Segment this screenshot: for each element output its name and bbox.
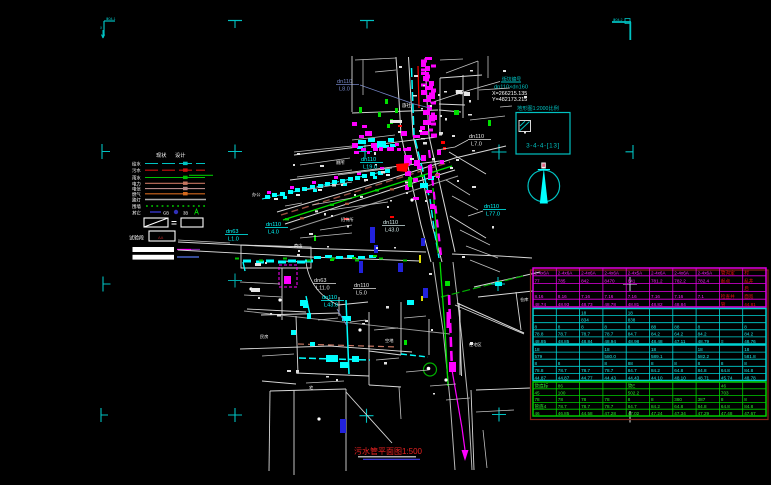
svg-text:44.58: 44.58 <box>581 411 593 416</box>
svg-text:8: 8 <box>558 325 561 330</box>
svg-text:18: 18 <box>628 310 634 315</box>
svg-text:2-4x6A: 2-4x6A <box>698 271 713 276</box>
svg-text:64.2: 64.2 <box>674 332 683 337</box>
svg-text:84.2: 84.2 <box>651 332 660 337</box>
svg-text:48.85: 48.85 <box>535 339 547 344</box>
svg-text:47.24: 47.24 <box>651 411 663 416</box>
svg-text:78.7: 78.7 <box>604 368 613 373</box>
svg-text:X=266215.135: X=266215.135 <box>492 91 527 97</box>
svg-text:8: 8 <box>581 325 584 330</box>
svg-text:84.2: 84.2 <box>698 332 707 337</box>
svg-text:46: 46 <box>721 384 727 389</box>
svg-text:dn110: dn110 <box>322 295 337 301</box>
svg-text:7.16: 7.16 <box>604 294 613 299</box>
svg-text:仓库: 仓库 <box>520 296 528 303</box>
svg-text:703: 703 <box>721 390 729 395</box>
svg-text:dn63: dn63 <box>226 229 238 235</box>
svg-text:84.8: 84.8 <box>744 368 753 373</box>
svg-text:78.8: 78.8 <box>535 368 544 373</box>
svg-text:48.76: 48.76 <box>744 339 756 344</box>
svg-text:84.2: 84.2 <box>651 368 660 373</box>
svg-text:86: 86 <box>558 384 564 389</box>
svg-text:管: 管 <box>721 301 726 308</box>
svg-text:64.8: 64.8 <box>674 404 683 409</box>
svg-text:Ⅲ04.2: Ⅲ04.2 <box>613 18 622 22</box>
svg-text:L43.0: L43.0 <box>385 228 399 234</box>
svg-text:84.2: 84.2 <box>744 332 753 337</box>
svg-text:地形图1:2000比例: 地形图1:2000比例 <box>517 104 559 112</box>
svg-text:L19.0: L19.0 <box>363 165 377 171</box>
svg-text:88: 88 <box>651 325 657 330</box>
svg-text:84.8: 84.8 <box>744 404 753 409</box>
svg-text:7.1: 7.1 <box>698 294 705 299</box>
svg-text:8: 8 <box>535 325 538 330</box>
svg-text:18: 18 <box>744 347 750 352</box>
svg-text:L7.0: L7.0 <box>471 142 482 148</box>
svg-text:581.8: 581.8 <box>744 354 756 359</box>
svg-text:838: 838 <box>628 318 636 323</box>
svg-text:841: 841 <box>628 278 636 283</box>
svg-text:招待所: 招待所 <box>341 216 354 223</box>
svg-text:7.16: 7.16 <box>581 294 590 299</box>
svg-text:582.2: 582.2 <box>698 354 710 359</box>
svg-text:村: 村 <box>744 270 749 276</box>
svg-text:64.8: 64.8 <box>674 368 683 373</box>
svg-text:78.8: 78.8 <box>535 332 544 337</box>
svg-text:579: 579 <box>535 354 543 359</box>
svg-text:48.71: 48.71 <box>698 375 710 380</box>
svg-text:48.94: 48.94 <box>604 339 616 344</box>
svg-text:48.81: 48.81 <box>628 302 640 307</box>
svg-text:8: 8 <box>628 397 631 402</box>
svg-text:44.43: 44.43 <box>628 375 640 380</box>
svg-text:L5.0: L5.0 <box>356 291 367 297</box>
svg-text:84.7: 84.7 <box>628 404 637 409</box>
svg-text:8.16: 8.16 <box>535 294 544 299</box>
svg-text:47.02: 47.02 <box>628 411 640 416</box>
svg-text:48.98: 48.98 <box>628 339 640 344</box>
svg-text:2-4x6A: 2-4x6A <box>558 271 573 276</box>
svg-text:78: 78 <box>581 397 587 402</box>
svg-text:L77.0: L77.0 <box>486 212 500 218</box>
svg-text:dn63: dn63 <box>314 278 326 284</box>
svg-text:782.4: 782.4 <box>698 278 710 283</box>
svg-text:18: 18 <box>581 310 587 315</box>
svg-text:8470: 8470 <box>604 278 615 283</box>
svg-text:8: 8 <box>721 397 724 402</box>
svg-text:试验段: 试验段 <box>129 235 144 242</box>
svg-text:48.74: 48.74 <box>535 302 547 307</box>
svg-text:64.8: 64.8 <box>721 368 730 373</box>
svg-text:8: 8 <box>651 397 654 402</box>
svg-text:48.84: 48.84 <box>674 302 686 307</box>
svg-text:污水管平面图1:500: 污水管平面图1:500 <box>354 446 423 456</box>
svg-text:785: 785 <box>558 278 566 283</box>
svg-text:47.67: 47.67 <box>744 411 756 416</box>
svg-text:8: 8 <box>651 361 654 366</box>
svg-text:380: 380 <box>674 397 682 402</box>
svg-text:18: 18 <box>535 347 541 352</box>
svg-text:44.81: 44.81 <box>744 302 756 307</box>
svg-text:8: 8 <box>558 361 561 366</box>
svg-text:84.2: 84.2 <box>651 404 660 409</box>
svg-text:dn110: dn110 <box>354 283 369 289</box>
svg-text:48.84: 48.84 <box>581 339 593 344</box>
svg-text:78.7: 78.7 <box>604 404 613 409</box>
svg-text:2-4x6A: 2-4x6A <box>604 271 619 276</box>
svg-text:45.74: 45.74 <box>721 375 733 380</box>
svg-text:dn110: dn110 <box>361 157 376 163</box>
svg-text:乱井: 乱井 <box>744 277 754 284</box>
svg-text:旅社: 旅社 <box>402 102 411 109</box>
svg-text:2-4x6A: 2-4x6A <box>535 271 550 276</box>
svg-text:44.43: 44.43 <box>604 375 616 380</box>
svg-text:8.16: 8.16 <box>558 294 567 299</box>
svg-text:dn110: dn110 <box>469 134 484 140</box>
svg-text:8: 8 <box>604 361 607 366</box>
svg-text:84.7: 84.7 <box>628 332 637 337</box>
svg-text:48.73: 48.73 <box>581 302 593 307</box>
svg-text:3-4-4-[13]: 3-4-4-[13] <box>526 143 560 150</box>
svg-text:宅: 宅 <box>309 384 313 390</box>
svg-text:47.34: 47.34 <box>674 411 686 416</box>
svg-text:47.28: 47.28 <box>604 411 616 416</box>
svg-text:后: 后 <box>744 285 749 292</box>
svg-text:782.2: 782.2 <box>674 278 686 283</box>
svg-text:管底4: 管底4 <box>535 403 547 410</box>
svg-text:18: 18 <box>651 347 657 352</box>
svg-text:2-4x6A: 2-4x6A <box>581 271 596 276</box>
svg-text:3B: 3B <box>183 210 188 215</box>
svg-text:47.29: 47.29 <box>698 411 710 416</box>
svg-text:44.87: 44.87 <box>558 375 570 380</box>
svg-text:781.2: 781.2 <box>651 278 663 283</box>
svg-text:48.93: 48.93 <box>558 302 570 307</box>
svg-text:84.7: 84.7 <box>628 368 637 373</box>
svg-text:589.1: 589.1 <box>651 354 663 359</box>
svg-text:48.48: 48.48 <box>651 339 663 344</box>
svg-text:7.16: 7.16 <box>651 294 660 299</box>
svg-text:84.8: 84.8 <box>698 368 707 373</box>
svg-text:47.48: 47.48 <box>721 411 733 416</box>
svg-text:≡: ≡ <box>721 339 724 344</box>
svg-text:dn110: dn110 <box>383 220 398 226</box>
svg-text:8: 8 <box>744 325 747 330</box>
svg-text:45: 45 <box>535 390 541 395</box>
svg-text:L8.0: L8.0 <box>339 87 350 93</box>
svg-text:其它: 其它 <box>132 210 141 217</box>
svg-text:检查井: 检查井 <box>721 293 735 300</box>
svg-text:dn110: dn110 <box>337 79 352 85</box>
svg-text:84.8: 84.8 <box>698 404 707 409</box>
svg-text:民房: 民房 <box>260 333 268 340</box>
svg-text:78: 78 <box>535 397 541 402</box>
svg-text:L4.0: L4.0 <box>268 230 279 236</box>
svg-text:8: 8 <box>674 361 677 366</box>
svg-text:2-4x6A: 2-4x6A <box>651 271 666 276</box>
svg-text:2-4x5A: 2-4x5A <box>628 271 643 276</box>
svg-text:dn110: dn110 <box>266 222 281 228</box>
svg-text:8: 8 <box>721 361 724 366</box>
svg-text:48.78: 48.78 <box>744 375 756 380</box>
svg-text:2-4x6A: 2-4x6A <box>674 271 689 276</box>
svg-text:88: 88 <box>628 361 634 366</box>
svg-text:78.7: 78.7 <box>558 332 567 337</box>
svg-text:现状: 现状 <box>156 151 167 159</box>
svg-text:78.7: 78.7 <box>581 332 590 337</box>
svg-text:8: 8 <box>744 361 747 366</box>
svg-text:100: 100 <box>558 390 566 395</box>
svg-text:空地: 空地 <box>385 337 394 343</box>
svg-text:78.7: 78.7 <box>581 368 590 373</box>
svg-text:46.85: 46.85 <box>558 411 570 416</box>
svg-text:44.77: 44.77 <box>581 375 593 380</box>
svg-text:8: 8 <box>698 361 701 366</box>
svg-text:7.16: 7.16 <box>628 294 637 299</box>
svg-text:商店: 商店 <box>294 242 302 249</box>
svg-text:88: 88 <box>674 325 680 330</box>
svg-text:办公: 办公 <box>252 191 261 198</box>
svg-text:L11.0: L11.0 <box>316 286 330 292</box>
svg-text:8: 8 <box>535 361 538 366</box>
svg-text:78: 78 <box>604 397 610 402</box>
svg-text:设计: 设计 <box>175 151 185 159</box>
svg-text:dn110×dn160: dn110×dn160 <box>494 85 528 91</box>
svg-text:Y=482173.215: Y=482173.215 <box>492 97 527 103</box>
svg-text:842: 842 <box>581 278 589 283</box>
svg-text:78.7: 78.7 <box>604 332 613 337</box>
svg-text:387: 387 <box>698 397 706 402</box>
svg-text:Ⅲ04.1: Ⅲ04.1 <box>106 17 115 21</box>
svg-text:AA: AA <box>158 235 164 240</box>
svg-text:77: 77 <box>535 278 541 283</box>
svg-text:46: 46 <box>535 411 541 416</box>
svg-text:给水: 给水 <box>132 161 141 168</box>
svg-text:44.10: 44.10 <box>651 375 663 380</box>
svg-text:7.16: 7.16 <box>674 294 683 299</box>
svg-text:18: 18 <box>604 347 610 352</box>
svg-text:L43.0: L43.0 <box>324 303 338 309</box>
svg-text:面宽: 面宽 <box>744 293 754 300</box>
svg-text:78.7: 78.7 <box>558 404 567 409</box>
svg-text:78.7: 78.7 <box>558 368 567 373</box>
svg-text:48.79: 48.79 <box>698 339 710 344</box>
svg-text:街坊编号: 街坊编号 <box>502 76 521 83</box>
svg-text:78: 78 <box>558 397 564 402</box>
svg-text:48.85: 48.85 <box>558 339 570 344</box>
svg-text:8: 8 <box>744 397 747 402</box>
svg-text:管底标: 管底标 <box>535 383 549 390</box>
svg-text:78.7: 78.7 <box>581 404 590 409</box>
svg-text:污水: 污水 <box>132 167 141 174</box>
svg-text:路灯: 路灯 <box>132 197 141 204</box>
svg-text:8: 8 <box>628 325 631 330</box>
svg-text:18: 18 <box>698 347 704 352</box>
svg-text:8: 8 <box>698 325 701 330</box>
svg-text:48.10: 48.10 <box>674 375 686 380</box>
svg-text:47.11: 47.11 <box>674 339 686 344</box>
svg-text:L1.0: L1.0 <box>228 237 239 243</box>
svg-text:44.87: 44.87 <box>535 375 547 380</box>
svg-text:GB: GB <box>163 210 169 215</box>
svg-text:64.8: 64.8 <box>721 404 730 409</box>
svg-text:管E: 管E <box>628 383 636 390</box>
svg-text:48.82: 48.82 <box>651 302 663 307</box>
svg-text:管沟定: 管沟定 <box>721 270 735 277</box>
svg-text:8: 8 <box>604 325 607 330</box>
svg-text:48.78: 48.78 <box>604 302 616 307</box>
svg-text:围墙: 围墙 <box>132 203 141 210</box>
svg-text:834: 834 <box>581 318 589 323</box>
svg-text:502.2: 502.2 <box>628 390 640 395</box>
svg-text:dn110: dn110 <box>484 204 499 210</box>
svg-text:580.0: 580.0 <box>604 354 616 359</box>
